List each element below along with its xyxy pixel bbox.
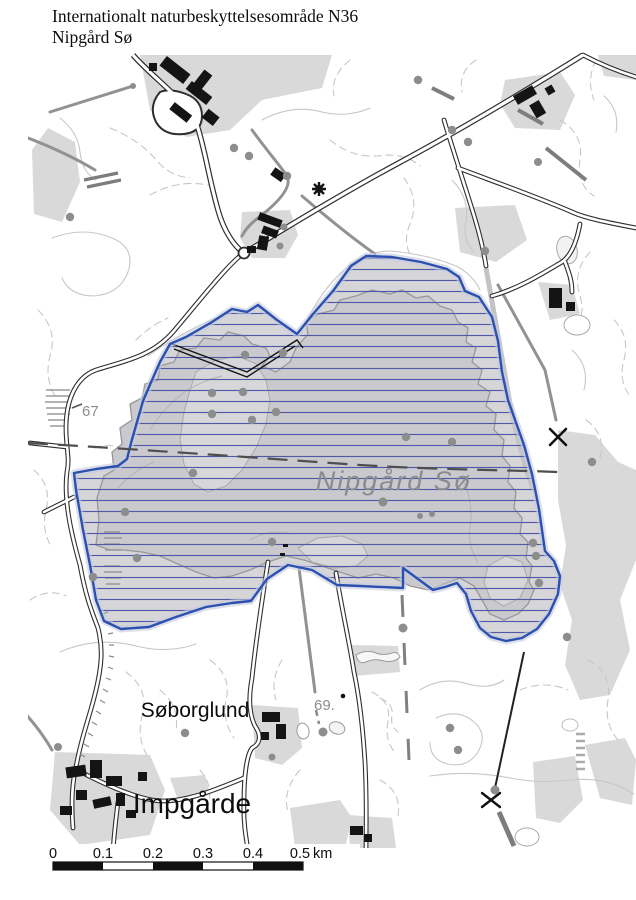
- label-impgarde: Impgårde: [133, 788, 251, 819]
- mill-symbol: [312, 182, 326, 196]
- scale-unit: km: [313, 846, 332, 862]
- scale-tick-2: 0.2: [143, 846, 163, 862]
- scale-tick-5: 0.5: [290, 846, 310, 862]
- scale-tick-1: 0.1: [93, 846, 113, 862]
- elevation-label-67: 67: [82, 403, 99, 420]
- scale-segment: [153, 862, 203, 870]
- powerline-to-cross: [495, 652, 524, 788]
- label-soborglund: Søborglund: [141, 699, 250, 722]
- lake-label: Nipgård Sø: [316, 466, 473, 496]
- title-line-2: Nipgård Sø: [52, 27, 132, 47]
- scale-tick-4: 0.4: [243, 846, 263, 862]
- elevation-label-69: 69.: [314, 697, 335, 714]
- map-canvas: Nipgård Sø Søborglund Impgårde 67 69. 0 …: [0, 0, 636, 900]
- scale-segment: [53, 862, 103, 870]
- map-title: Internationalt naturbeskyttelsesområde N…: [52, 6, 358, 47]
- scale-tick-3: 0.3: [193, 846, 213, 862]
- scale-segment: [253, 862, 303, 870]
- scale-tick-0: 0: [49, 846, 57, 862]
- cross-marker-south: [482, 793, 500, 807]
- map-sheet: Nipgård Sø Søborglund Impgårde 67 69. 0 …: [0, 0, 636, 900]
- scale-bar: 0 0.1 0.2 0.3 0.4 0.5 km: [36, 844, 360, 880]
- title-line-1: Internationalt naturbeskyttelsesområde N…: [52, 6, 358, 26]
